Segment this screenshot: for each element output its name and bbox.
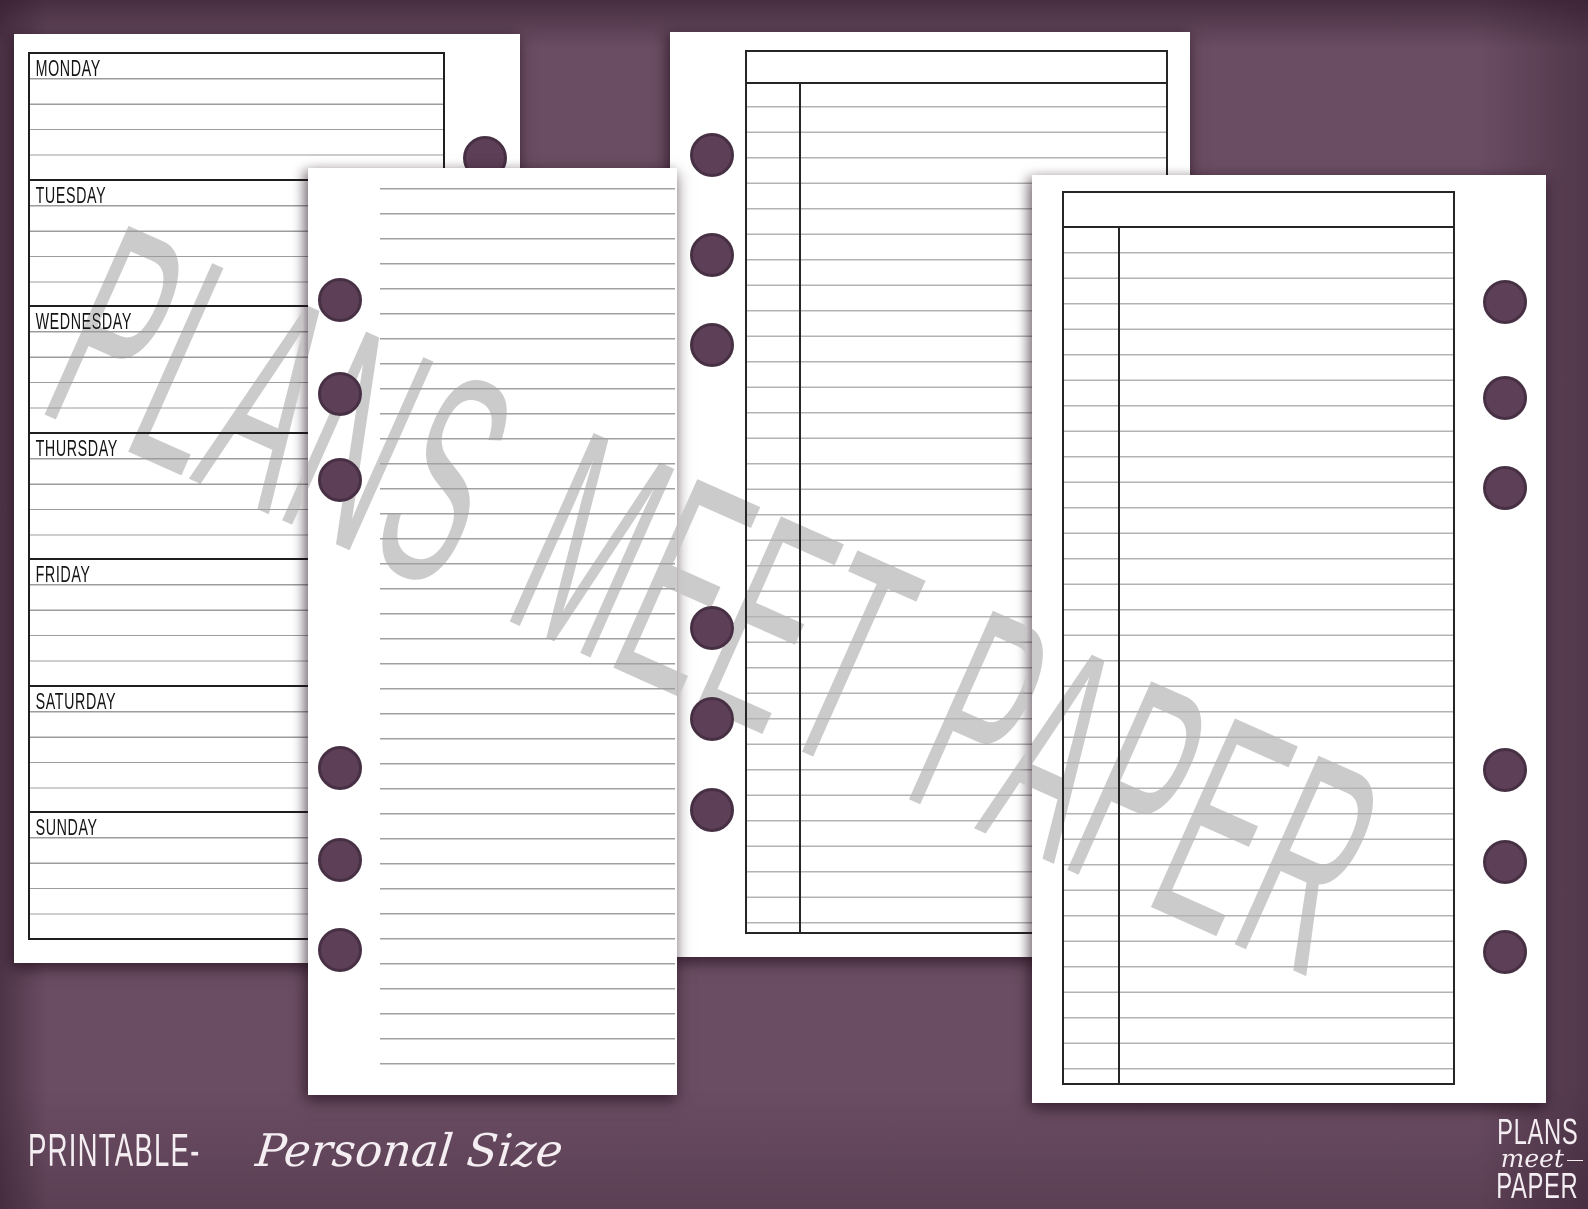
lined-notes-page [308,168,677,1095]
logo-plans: PLANS [1496,1114,1578,1150]
binder-hole [1483,466,1527,510]
printable-label: PRINTABLE- [28,1120,201,1180]
product-image: MONDAYTUESDAYWEDNESDAYTHURSDAYFRIDAYSATU… [0,0,1588,1209]
binder-hole [1483,748,1527,792]
binder-hole [1483,280,1527,324]
day-section: MONDAY [30,54,443,179]
ledger-table [1062,191,1455,1085]
ledger-column-divider [799,82,801,932]
binder-hole [318,278,362,322]
binder-hole [690,323,734,367]
footer-caption: PRINTABLE-Personal Size [28,1120,562,1181]
binder-hole [318,928,362,972]
binder-hole [1483,930,1527,974]
size-label: Personal Size [252,1121,565,1181]
logo-dash [1567,1160,1583,1161]
ledger-header-row [747,52,1166,84]
day-label: SATURDAY [30,687,116,713]
day-label: TUESDAY [30,181,106,207]
day-label: SUNDAY [30,813,98,839]
binder-hole [690,697,734,741]
day-label: WEDNESDAY [30,307,132,333]
brand-logo: PLANS meet PAPER [1454,1114,1578,1204]
binder-hole [318,838,362,882]
ledger-header-row [1064,193,1453,228]
notes-ruled-lines [380,188,675,1076]
binder-hole [1483,840,1527,884]
ledger-column-divider [1118,228,1120,1083]
binder-hole [690,133,734,177]
binder-hole [1483,376,1527,420]
binder-hole [690,788,734,832]
day-label: FRIDAY [30,560,91,586]
binder-hole [318,458,362,502]
logo-paper: PAPER [1496,1168,1578,1204]
ledger-ruled-rows [1064,228,1453,1083]
day-label: THURSDAY [30,434,118,460]
binder-hole [690,233,734,277]
day-label: MONDAY [30,54,101,80]
ledger-page-right [1032,175,1546,1103]
binder-hole [690,606,734,650]
binder-hole [318,746,362,790]
binder-hole [318,372,362,416]
